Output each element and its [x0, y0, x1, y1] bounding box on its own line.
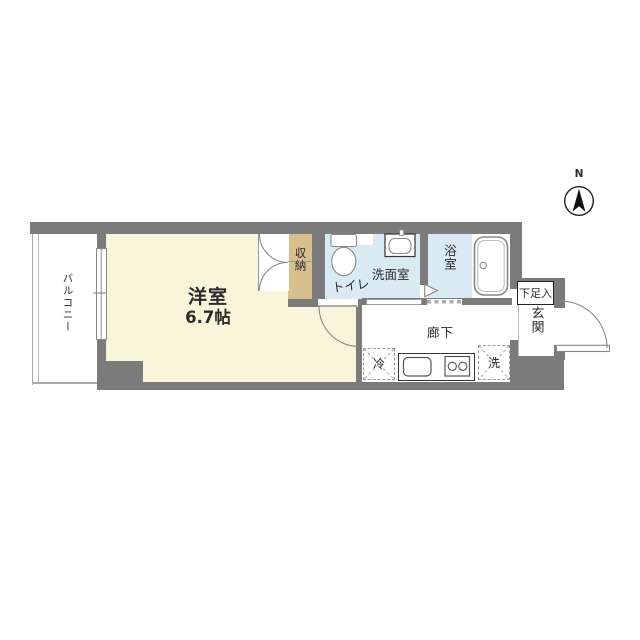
bath-door-track: [427, 299, 462, 305]
wall-left-upper: [97, 234, 107, 249]
north-arrow-icon: [573, 189, 586, 212]
wall-room-right: [356, 303, 363, 391]
western-room-name: 洋室: [188, 286, 228, 308]
western-room-label: 洋室: [148, 288, 268, 307]
entrance-door-arc: [560, 301, 607, 348]
toilet-door-opening: [318, 299, 359, 307]
bathroom-label: 浴室: [443, 244, 456, 271]
western-room-size-label: 6.7帖: [148, 310, 268, 327]
bathtub-zone: [472, 234, 511, 298]
wall-closet-toilet: [312, 234, 326, 300]
western-room-size: 6.7帖: [185, 308, 231, 327]
compass-north-label: N: [574, 169, 585, 180]
balcony-label: バルコニー: [62, 273, 73, 333]
balcony-outer-line: [32, 225, 33, 385]
shoe-cabinet-label: 下足入: [519, 288, 552, 299]
wall-bottom: [140, 382, 564, 390]
closet-label: 収納: [294, 247, 306, 272]
closet-door-zone: [258, 234, 289, 292]
washroom-label: 洗面室: [372, 269, 410, 282]
washing-machine-label: 洗: [488, 357, 500, 369]
entrance-label: 玄関: [530, 306, 543, 334]
washing-machine-space-box: 洗: [478, 345, 510, 380]
wall-right-upper: [554, 289, 566, 308]
toilet-corner-notch: [356, 234, 373, 245]
wall-top: [30, 222, 522, 234]
balcony-window: [96, 248, 107, 340]
compass-circle: [565, 187, 594, 216]
wall-entrance-block: [512, 356, 564, 390]
compass: [565, 187, 594, 216]
wall-washroom-bath: [420, 234, 429, 285]
balcony-bottom-line: [32, 382, 99, 384]
hallway-label: 廊下: [427, 327, 454, 340]
washroom-sliding-door: [366, 299, 422, 305]
shoe-cabinet-box: 下足入: [517, 281, 554, 305]
balcony-inner-line: [38, 234, 39, 383]
entrance-step-line: [518, 305, 519, 356]
kitchen-counter: [398, 353, 475, 381]
refrigerator-space-box: 冷: [363, 348, 395, 380]
wall-left-lower: [97, 340, 107, 363]
wall-left-bottom-block: [97, 361, 144, 390]
floor-plan: 下足入 冷 洗: [0, 0, 640, 640]
refrigerator-label: 冷: [373, 358, 385, 370]
